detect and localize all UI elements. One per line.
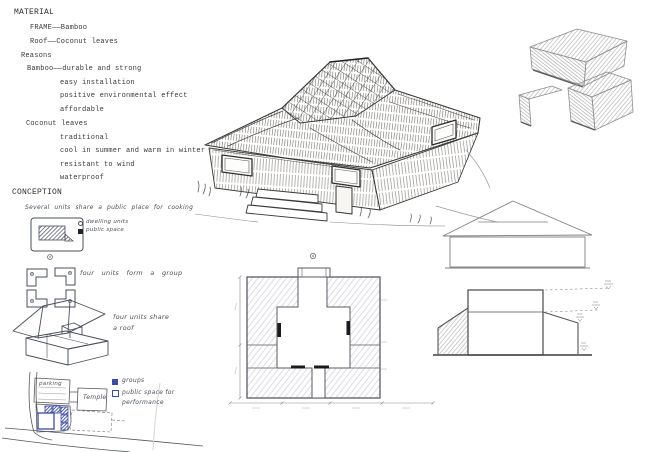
typed-line: positive environmental effect <box>60 92 188 100</box>
public-space-label: public space <box>86 227 124 233</box>
typed-line: traditional <box>60 134 108 142</box>
group-note: four units form a group <box>80 269 182 277</box>
public-performance-label: public space for performance <box>122 388 192 408</box>
typed-line: cool in summer and warm in winter <box>60 147 205 155</box>
typed-line-coconut: Coconut leaves <box>26 120 88 128</box>
dwelling-units-symbol <box>78 221 83 226</box>
typed-line-roof: Roof——Coconut leaves <box>30 38 118 46</box>
typed-line: waterproof <box>60 174 104 182</box>
cooking-diagram <box>31 218 83 259</box>
typed-line-bamboo: Bamboo——durable and strong <box>27 65 141 73</box>
cooking-note: Several units share a public place for c… <box>25 204 193 211</box>
public-performance-symbol <box>112 390 119 397</box>
site-plan-sketch <box>2 372 203 452</box>
groups-legend-symbol <box>112 379 118 385</box>
hut-perspective-sketch <box>195 58 497 226</box>
temple-label: Temple <box>83 394 106 401</box>
typed-line: easy installation <box>60 79 135 87</box>
dwelling-units-label: dwelling units <box>86 219 128 225</box>
floor-plan-sketch <box>229 253 435 408</box>
typed-line-frame: FRAME——Bamboo <box>30 24 87 32</box>
section-sketch <box>433 281 613 355</box>
public-space-square <box>38 413 54 429</box>
shared-roof-axon-sketch <box>13 300 108 365</box>
public-space-symbol <box>78 229 83 234</box>
parking-label: parking <box>39 381 62 387</box>
material-heading: MATERIAL <box>14 8 54 17</box>
sketch-sheet: MATERIAL FRAME——Bamboo Roof——Coconut lea… <box>0 0 650 452</box>
conception-heading: CONCEPTION <box>12 188 62 197</box>
typed-line: affordable <box>60 106 104 114</box>
groups-legend-label: groups <box>122 377 144 384</box>
four-units-diagram <box>27 268 75 307</box>
shared-roof-note: four units share a roof <box>113 312 171 334</box>
typed-line-reasons: Reasons <box>21 52 52 60</box>
front-elevation-sketch <box>443 201 592 268</box>
roof-detail-sketches <box>519 29 633 130</box>
typed-line: resistant to wind <box>60 161 135 169</box>
